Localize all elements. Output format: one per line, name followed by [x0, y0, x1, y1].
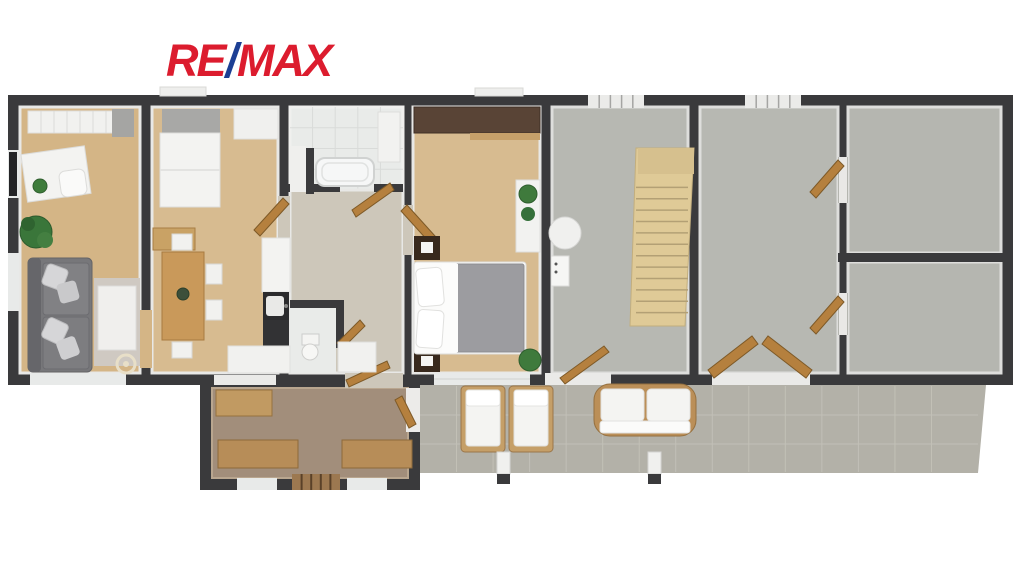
kitchen-counter — [262, 238, 290, 292]
window-left-bottom — [8, 253, 19, 311]
vestibule-bench — [218, 440, 298, 468]
hall-niche — [290, 146, 306, 192]
logo-slash-icon: / — [225, 36, 238, 85]
remax-logo: RE/MAX — [166, 38, 331, 83]
terrace-post-base — [497, 474, 510, 484]
dining-chair — [172, 342, 192, 358]
vestibule-steps — [292, 474, 340, 490]
living-corner-chair — [112, 109, 134, 137]
bed-duvet — [456, 264, 524, 352]
chimney-bump-2 — [475, 88, 523, 96]
bed-sheet — [442, 264, 458, 352]
living-desk-plant — [33, 179, 47, 193]
living-desk-chair — [58, 168, 87, 197]
terrace-post-base — [648, 474, 661, 484]
bedroom-plant — [519, 349, 541, 371]
terrace-post — [648, 452, 661, 474]
staircase — [630, 148, 694, 326]
hall-niche-wall — [306, 148, 314, 194]
wardrobe-shelf — [470, 133, 540, 140]
terrace-post — [497, 452, 510, 474]
bed-pillow — [416, 309, 445, 349]
floor-lamp-center — [123, 361, 129, 367]
kitchen-counter-bottom — [228, 346, 290, 373]
dining-chair — [206, 300, 222, 320]
floorplan-image: RE/MAX — [0, 0, 1024, 576]
tv-screen — [9, 152, 17, 196]
staircase-landing — [638, 148, 694, 174]
vestibule-window-2 — [347, 478, 387, 490]
sink-faucet — [284, 304, 288, 308]
toilet-tank — [302, 334, 319, 345]
vestibule-window-1 — [237, 478, 277, 490]
bath-cabinet — [378, 112, 400, 162]
lounger-pillow — [514, 390, 548, 406]
terrace-sofa-cushion — [647, 389, 690, 421]
lounger-pillow — [466, 390, 500, 406]
floor-storage-top — [848, 107, 1001, 253]
toilet-bowl — [302, 344, 318, 360]
vestibule-cabinet — [216, 390, 272, 416]
vestibule-bench — [342, 440, 412, 468]
kitchen-top-cabinet — [234, 109, 278, 139]
nightstand-bottom-lamp — [421, 356, 433, 366]
window-living-bottom — [30, 373, 126, 385]
terrace-sofa-cushion — [601, 389, 644, 421]
table-flowers — [177, 288, 189, 300]
bathtub — [316, 158, 374, 186]
bed-pillow — [415, 267, 444, 307]
wc-wall-top — [290, 300, 344, 308]
living-plant-leaf — [21, 217, 35, 231]
roof-vent-2 — [745, 95, 801, 108]
sink-basin — [266, 296, 284, 316]
sill-kitchen-vestibule — [214, 375, 276, 385]
boiler-unit — [551, 256, 569, 286]
floorplan-svg — [0, 0, 1024, 576]
storage-divider-wall — [838, 253, 1013, 262]
living-plant-leaf — [37, 232, 53, 248]
kitchen-dark-cabinet — [263, 320, 289, 346]
daybed-headboard — [162, 109, 220, 133]
dining-chair — [206, 264, 222, 284]
boiler-knob — [555, 263, 558, 266]
sill-garage-terrace — [712, 373, 810, 385]
boiler-knob — [555, 271, 558, 274]
terrace-sofa-seat — [600, 421, 690, 433]
sofa-backrest — [28, 258, 41, 372]
wardrobe — [414, 107, 540, 133]
bedroom-plant — [521, 207, 535, 221]
logo-re: RE — [166, 35, 225, 86]
chimney-bump-1 — [160, 87, 206, 96]
floor-storage-bottom — [848, 262, 1001, 373]
roof-vent-1 — [588, 95, 644, 108]
logo-max: MAX — [237, 35, 331, 86]
water-tank — [549, 217, 581, 249]
coffee-table — [98, 286, 136, 350]
dining-chair — [172, 234, 192, 250]
hall-cabinet — [338, 342, 376, 372]
doorway-living-kitchen — [140, 310, 152, 368]
bedroom-plant — [519, 185, 537, 203]
nightstand-top-lamp — [421, 242, 433, 253]
